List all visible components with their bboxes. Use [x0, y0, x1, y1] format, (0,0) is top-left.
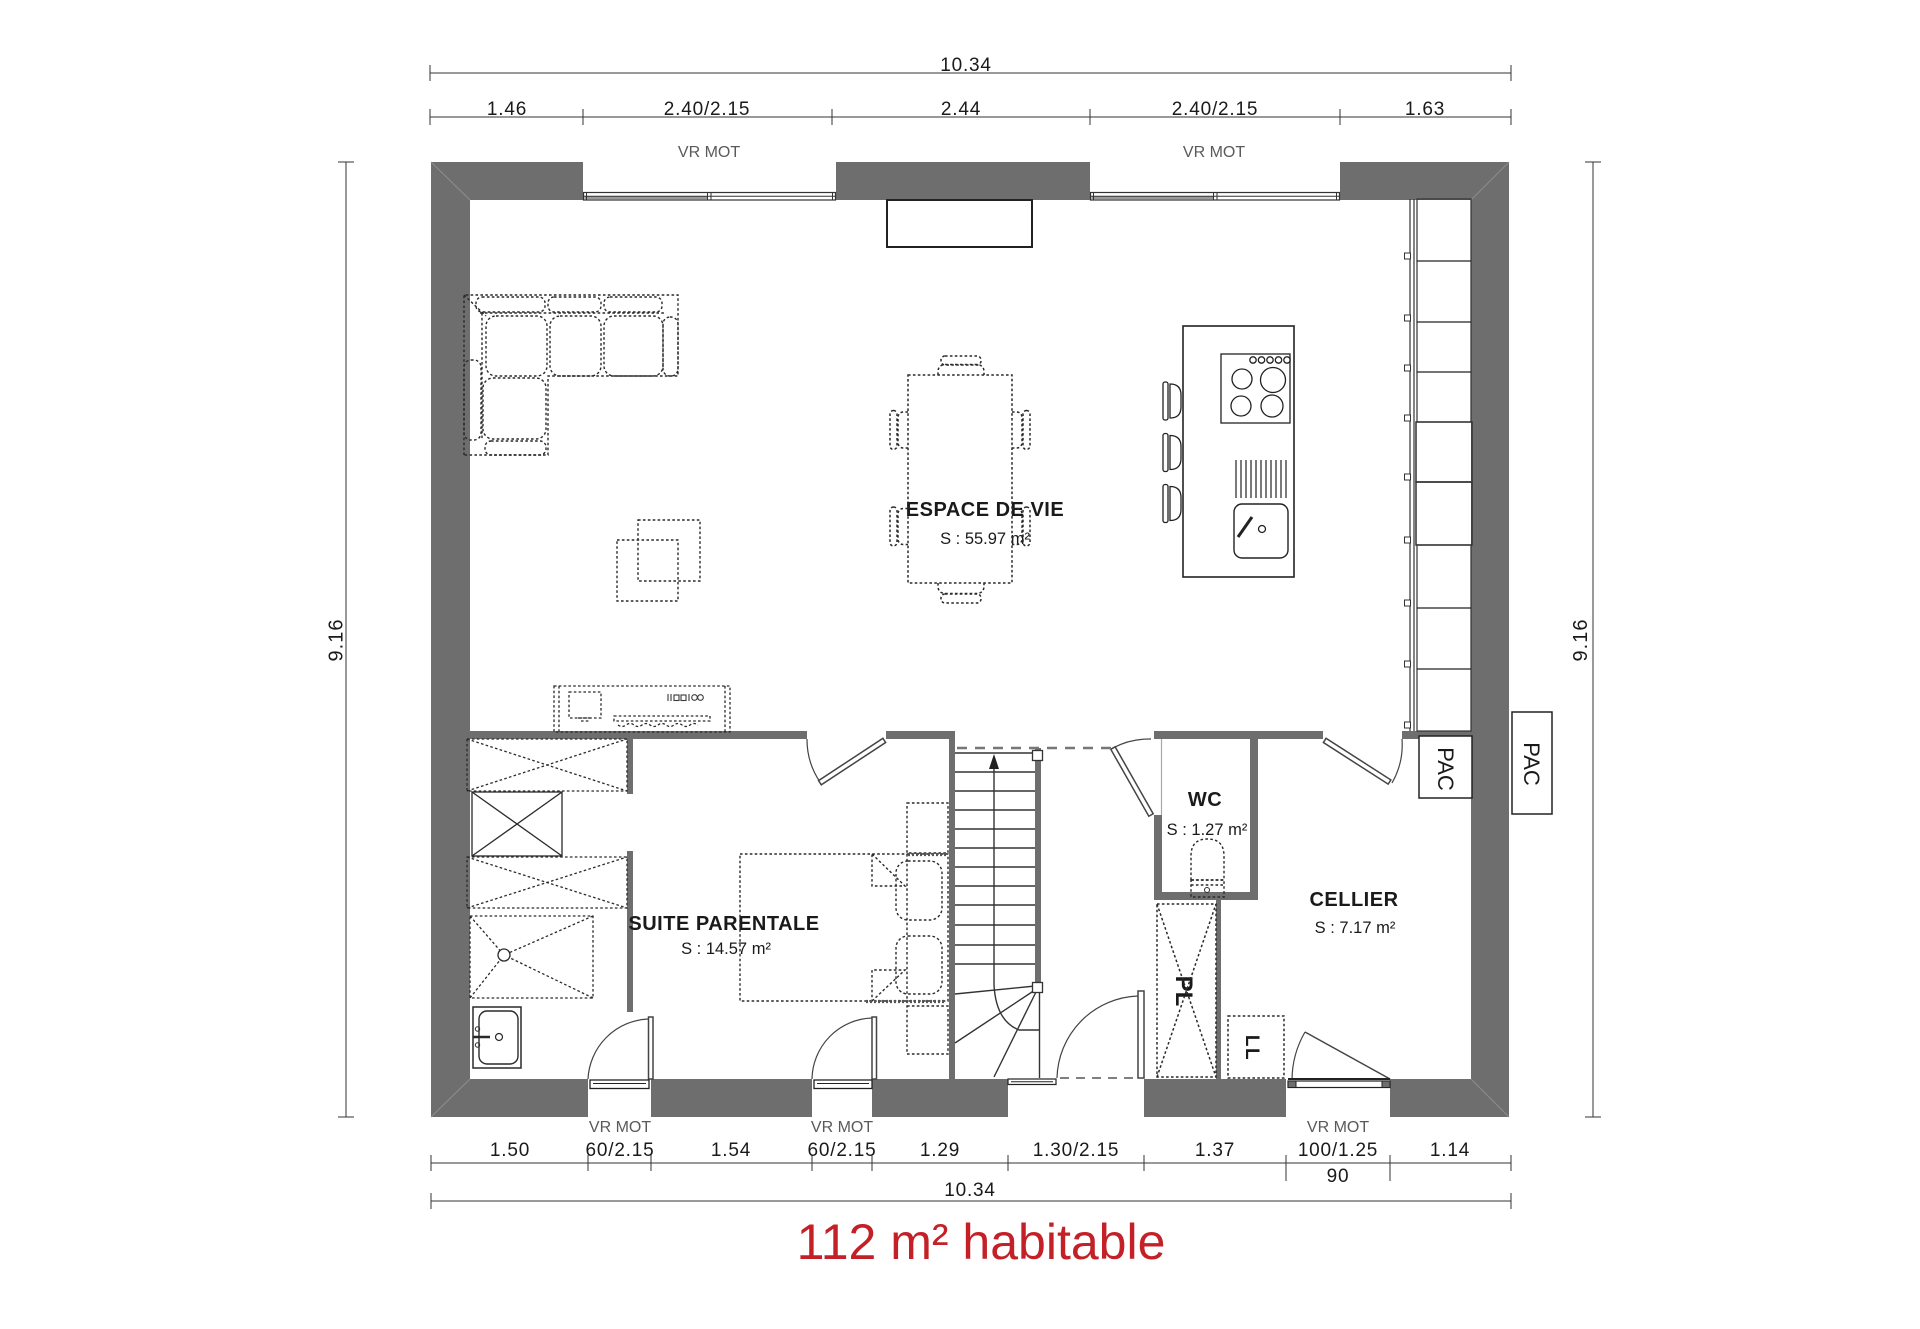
svg-text:PAC: PAC — [1519, 742, 1544, 786]
svg-text:S : 55.97 m²: S : 55.97 m² — [940, 530, 1030, 548]
svg-text:1.37: 1.37 — [1195, 1140, 1235, 1161]
svg-text:2.44: 2.44 — [941, 99, 981, 120]
svg-text:112 m² habitable: 112 m² habitable — [797, 1214, 1166, 1270]
svg-text:VR MOT: VR MOT — [589, 1119, 651, 1136]
svg-text:PAC: PAC — [1433, 747, 1458, 791]
svg-text:WC: WC — [1188, 789, 1222, 811]
svg-text:2.40/2.15: 2.40/2.15 — [664, 99, 750, 120]
svg-text:VR MOT: VR MOT — [678, 144, 740, 161]
svg-text:1.50: 1.50 — [490, 1140, 530, 1161]
svg-text:1.63: 1.63 — [1405, 99, 1445, 120]
svg-text:60/2.15: 60/2.15 — [586, 1140, 655, 1161]
svg-text:1.46: 1.46 — [487, 99, 527, 120]
svg-text:VR MOT: VR MOT — [811, 1119, 873, 1136]
svg-text:10.34: 10.34 — [940, 55, 992, 76]
svg-text:S : 1.27 m²: S : 1.27 m² — [1167, 821, 1248, 839]
svg-text:1.14: 1.14 — [1430, 1140, 1470, 1161]
svg-text:CELLIER: CELLIER — [1309, 889, 1398, 911]
svg-text:1.29: 1.29 — [920, 1140, 960, 1161]
svg-text:90: 90 — [1327, 1166, 1350, 1187]
svg-text:9.16: 9.16 — [1570, 619, 1592, 662]
svg-text:LL: LL — [1241, 1035, 1262, 1061]
svg-text:VR MOT: VR MOT — [1307, 1119, 1369, 1136]
svg-text:1.30/2.15: 1.30/2.15 — [1033, 1140, 1119, 1161]
svg-text:ESPACE DE VIE: ESPACE DE VIE — [906, 499, 1064, 521]
svg-text:S : 7.17 m²: S : 7.17 m² — [1315, 919, 1396, 937]
svg-text:1.54: 1.54 — [711, 1140, 751, 1161]
svg-text:VR MOT: VR MOT — [1183, 144, 1245, 161]
svg-text:10.34: 10.34 — [944, 1180, 996, 1201]
svg-text:9.16: 9.16 — [326, 619, 348, 662]
svg-text:2.40/2.15: 2.40/2.15 — [1172, 99, 1258, 120]
svg-text:S : 14.57 m²: S : 14.57 m² — [681, 940, 771, 958]
svg-text:100/1.25: 100/1.25 — [1298, 1140, 1378, 1161]
svg-text:SUITE PARENTALE: SUITE PARENTALE — [628, 913, 819, 935]
svg-text:60/2.15: 60/2.15 — [808, 1140, 877, 1161]
